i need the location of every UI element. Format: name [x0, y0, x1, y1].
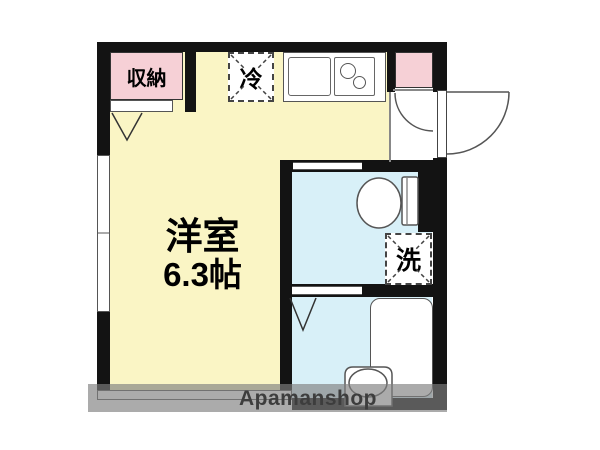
front-door-swing-arc	[447, 92, 509, 154]
closet-door-marker	[112, 113, 142, 140]
floor-plan: 収納 冷 洗	[0, 0, 600, 450]
plan-symbols-layer	[0, 0, 600, 450]
bath-door-marker	[290, 298, 316, 330]
refrigerator-corner-ticks	[231, 55, 271, 99]
washer-corner-ticks	[388, 236, 429, 282]
toilet-icon	[357, 177, 418, 228]
main-room-size: 6.3帖	[163, 257, 242, 293]
interior-door-swing-arc	[395, 93, 433, 131]
main-room-label: 洋室 6.3帖	[115, 213, 290, 297]
watermark-text: Apamanshop	[239, 387, 377, 411]
main-room-name: 洋室	[166, 217, 240, 258]
